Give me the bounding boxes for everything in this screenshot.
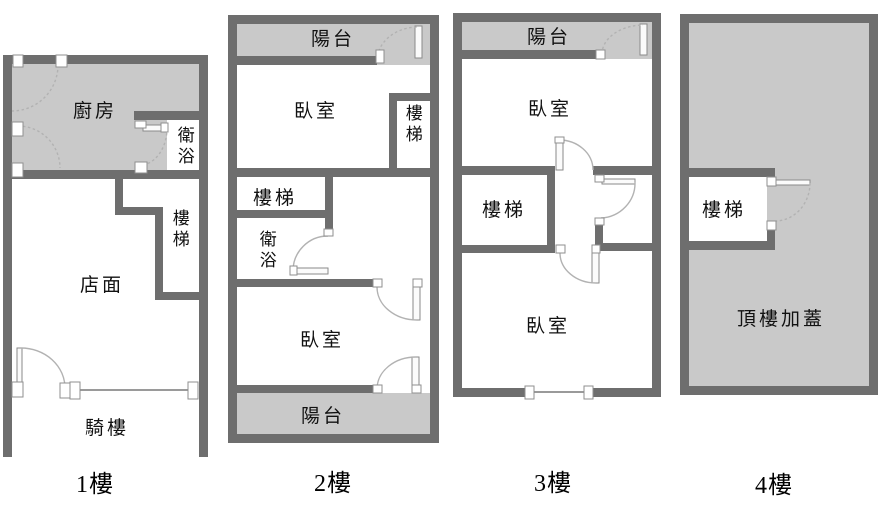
floor3-window xyxy=(525,386,593,399)
room-label-bath-f1: 衛浴 xyxy=(174,126,194,168)
floor2-caption: 2樓 xyxy=(314,471,352,499)
floor3-caption: 3樓 xyxy=(534,471,572,499)
room-label-stairs-f4: 樓梯 xyxy=(702,200,746,222)
room-label-stairs-f3: 樓梯 xyxy=(482,200,526,222)
room-label-kitchen: 廚房 xyxy=(73,101,117,123)
room-label-balcony-bottom-f2: 陽台 xyxy=(301,406,345,428)
floor1-caption: 1樓 xyxy=(76,472,114,500)
floor4-caption: 4樓 xyxy=(755,473,793,501)
room-label-bedroom-bottom-f2: 臥室 xyxy=(300,330,344,352)
room-label-stairs-f1: 樓梯 xyxy=(169,209,189,251)
room-label-bath-f2: 衛浴 xyxy=(256,230,276,272)
room-label-balcony-top-f2: 陽台 xyxy=(311,29,355,51)
room-label-bedroom-top-f3: 臥室 xyxy=(528,99,572,121)
room-label-balcony-f3: 陽台 xyxy=(527,27,571,49)
room-label-arcade: 騎樓 xyxy=(85,418,129,440)
floor2-plan xyxy=(228,15,439,443)
room-label-stairs-left-f2: 樓梯 xyxy=(253,188,297,210)
room-label-rooftop: 頂樓加蓋 xyxy=(737,309,825,331)
floor1-storefront-window xyxy=(70,382,198,399)
room-label-stairs-right-f2: 樓梯 xyxy=(402,104,422,146)
room-label-bedroom-bottom-f3: 臥室 xyxy=(526,316,570,338)
floorplan-canvas: 廚房 衛浴 樓梯 店面 騎樓 1樓 陽台 臥室 樓梯 樓梯 衛浴 臥室 陽台 2… xyxy=(0,0,889,519)
floorplan-drawing xyxy=(0,0,889,519)
room-label-store: 店面 xyxy=(80,275,124,297)
room-label-bedroom-top-f2: 臥室 xyxy=(294,101,338,123)
